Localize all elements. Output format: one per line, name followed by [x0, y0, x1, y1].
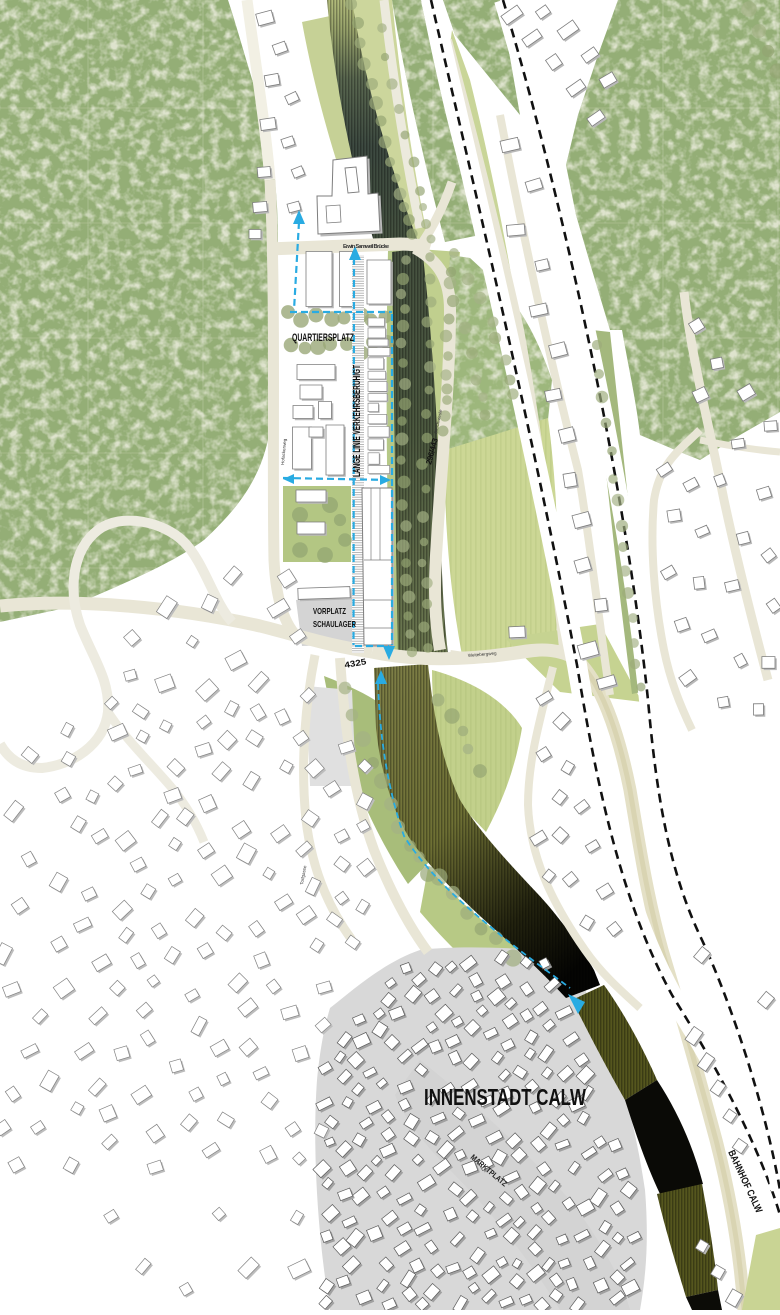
svg-text:LANGE LINIE VERKEHRSBERUHIGT: LANGE LINIE VERKEHRSBERUHIGT [352, 365, 363, 477]
svg-text:INNENSTADT CALW: INNENSTADT CALW [424, 1084, 587, 1110]
svg-text:QUARTIERSPLATZ: QUARTIERSPLATZ [292, 332, 354, 344]
svg-text:VORPLATZ: VORPLATZ [313, 606, 346, 616]
svg-text:Erwin Samweil Brücke: Erwin Samweil Brücke [343, 244, 389, 250]
svg-text:SCHAULAGER: SCHAULAGER [313, 619, 356, 629]
